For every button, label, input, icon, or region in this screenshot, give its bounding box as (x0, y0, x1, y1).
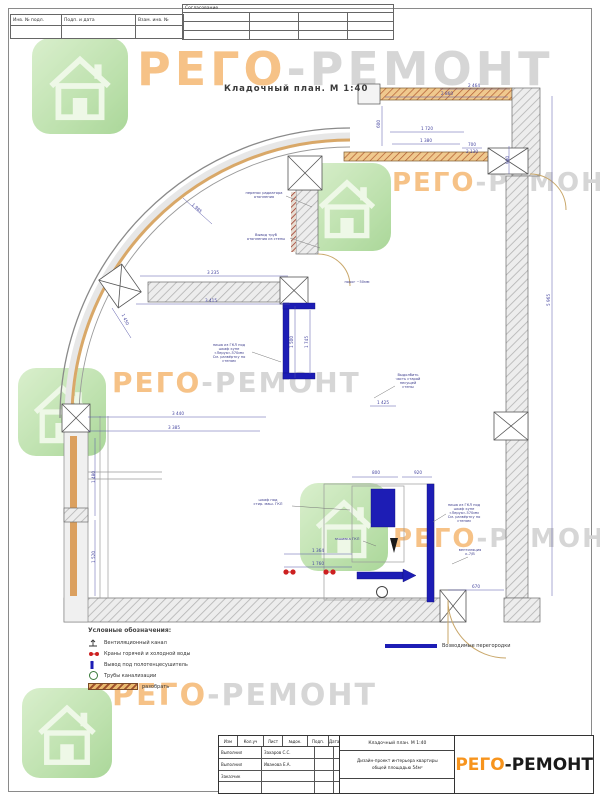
legend-title: Условные обозначения: (88, 627, 190, 634)
role-cell: Заказчик (219, 771, 262, 782)
partition-arrow (403, 569, 416, 582)
svg-text:1 720: 1 720 (421, 126, 433, 131)
sanitary-symbols (284, 538, 398, 598)
svg-text:3 440: 3 440 (172, 411, 184, 416)
sign-cell (315, 782, 334, 793)
approval-cell (348, 13, 393, 21)
legend-item-label: Возводимые перегородки (442, 643, 511, 649)
demolish-hatch-icon (88, 683, 138, 690)
svg-text:Выдолбитьчасть старойнесущейст: Выдолбитьчасть старойнесущейстены (396, 373, 421, 389)
svg-text:шкаф подстир. маш. ГКЛ: шкаф подстир. маш. ГКЛ (254, 498, 283, 506)
title-block-signatures: Изм Кол.уч Лист №док. Подп. Дата Выполни… (219, 736, 340, 793)
stamp-field-label: Подп. и дата (62, 15, 135, 26)
approval-cell (299, 31, 348, 39)
svg-text:2 130: 2 130 (466, 149, 478, 154)
column (62, 404, 90, 432)
svg-text:1 480: 1 480 (91, 471, 96, 483)
column (280, 277, 308, 304)
svg-text:920: 920 (414, 470, 422, 475)
header-cell: Подп. (308, 736, 329, 746)
svg-text:2 464: 2 464 (468, 83, 480, 88)
approval-cell (183, 22, 250, 30)
sign-cell (315, 747, 334, 758)
title-block-header-row: Изм Кол.уч Лист №док. Подп. Дата (219, 736, 339, 747)
svg-text:3 385: 3 385 (168, 425, 180, 430)
header-cell: Изм (219, 736, 238, 746)
door-arc (530, 174, 566, 210)
new-partition-icon (385, 644, 437, 648)
stamp-field-value (136, 26, 183, 38)
legend-item-label: Вентиляционный канал (104, 640, 167, 646)
name-cell (262, 771, 315, 782)
header-cell: №док. (283, 736, 308, 746)
approval-cell (348, 22, 393, 30)
approval-row (183, 31, 393, 39)
svg-text:1 985: 1 985 (191, 202, 204, 214)
approval-cell (250, 13, 299, 21)
role-cell: Выполнил (219, 747, 262, 758)
legend-item: разобрать (88, 681, 190, 692)
svg-text:800: 800 (372, 470, 380, 475)
annotation-leaders (252, 196, 468, 564)
legend: Условные обозначения: Вентиляционный кан… (88, 627, 190, 692)
approval-cell (183, 13, 250, 21)
header-cell: Кол.уч (238, 736, 264, 746)
legend-item: Трубы канализации (88, 670, 190, 681)
role-cell (219, 782, 262, 793)
svg-text:перенос радиатораотопления: перенос радиатораотопления (245, 191, 282, 199)
approval-table: Согласование (182, 4, 394, 40)
approval-header: Согласование (183, 5, 393, 13)
side-stamp-fields: Инв. № подл. Подп. и дата Взам. инв. № (10, 14, 184, 39)
svg-text:670: 670 (472, 584, 480, 589)
header-cell: Дата (329, 736, 339, 746)
stamp-field-value (11, 26, 61, 38)
stamp-field-date: Подп. и дата (61, 14, 135, 39)
svg-text:1 380: 1 380 (420, 138, 432, 143)
water-taps-icon (88, 650, 104, 658)
date-cell (334, 759, 339, 770)
role-cell: Выполнил (219, 759, 262, 770)
approval-cell (348, 31, 393, 39)
name-cell: Захаров С.С. (262, 747, 315, 758)
title-block: Изм Кол.уч Лист №док. Подп. Дата Выполни… (218, 735, 594, 794)
stamp-field-vzam: Взам. инв. № (135, 14, 184, 39)
project-description: Дизайн-проект интерьера квартиры общей п… (340, 751, 454, 779)
date-cell (334, 771, 339, 782)
annotation-texts: перенос радиатораотопленияВывод труботоп… (213, 191, 482, 556)
svg-text:1 425: 1 425 (377, 400, 389, 405)
approval-cell (250, 22, 299, 30)
svg-text:2 860: 2 860 (441, 91, 453, 96)
signature-row: Выполнил Захаров С.С. (219, 747, 339, 759)
svg-text:600: 600 (376, 120, 381, 128)
legend-item: Краны горячей и холодной воды (88, 648, 190, 659)
gkl-shaft (371, 489, 395, 527)
svg-text:3 235: 3 235 (207, 270, 219, 275)
new-partition (357, 572, 403, 579)
towel-dryer-outlet-icon (88, 660, 104, 670)
drawing-sheet: Инв. № подл. Подп. и дата Взам. инв. № С… (0, 0, 600, 800)
svg-text:1 745: 1 745 (304, 336, 309, 348)
approval-row (183, 22, 393, 31)
plan-title: Кладочный план. М 1:40 (224, 84, 368, 94)
date-cell (334, 747, 339, 758)
column (494, 412, 528, 440)
sewer-pipe-icon (88, 670, 104, 681)
svg-text:3 415: 3 415 (205, 298, 217, 303)
legend-item-label: Трубы канализации (104, 673, 156, 679)
column (288, 156, 322, 190)
stamp-field-label: Инв. № подл. (11, 15, 61, 26)
name-cell (262, 782, 315, 793)
svg-text:вентиляцияк-7/В: вентиляцияк-7/В (459, 548, 482, 556)
svg-text:700: 700 (468, 142, 476, 147)
vent-duct-icon (88, 638, 104, 647)
svg-text:ниша из ГКЛ подшкаф купе«Леруа: ниша из ГКЛ подшкаф купе«Леруа»-570ммСм.… (448, 503, 481, 523)
legend-item-new-partitions: Возводимые перегородки (385, 643, 511, 649)
title-block-description: Кладочный план. М 1:40 Дизайн-проект инт… (340, 736, 455, 793)
svg-text:1 364: 1 364 (312, 548, 324, 553)
sign-cell (315, 771, 334, 782)
approval-cell (250, 31, 299, 39)
stamp-field-inv: Инв. № подл. (10, 14, 61, 39)
signature-row: Заказчик (219, 771, 339, 783)
legend-item: Вентиляционный канал (88, 637, 190, 648)
approval-cell (183, 31, 250, 39)
name-cell: Иванова Е.А. (262, 759, 315, 770)
doc-title: Кладочный план. М 1:40 (340, 736, 454, 751)
approval-row (183, 13, 393, 22)
sewer-pipe-icon (377, 587, 388, 598)
svg-text:1 500: 1 500 (289, 336, 294, 348)
column (440, 590, 466, 622)
brand-part1: РЕГО (455, 755, 504, 775)
svg-text:порог ~50мм: порог ~50мм (344, 280, 369, 284)
svg-text:1 760: 1 760 (312, 561, 324, 566)
sign-cell (315, 759, 334, 770)
approval-cell (299, 13, 348, 21)
water-taps-icon (324, 570, 335, 574)
svg-text:1 520: 1 520 (91, 551, 96, 563)
towel-dryer-icon (390, 538, 398, 553)
svg-text:980: 980 (505, 156, 510, 164)
brand-part2: -РЕМОНТ (505, 755, 593, 775)
svg-text:зашивка ГКЛ: зашивка ГКЛ (335, 537, 360, 541)
door-swings (318, 174, 566, 658)
legend-item-label: Краны горячей и холодной воды (104, 651, 190, 657)
signature-row: Выполнил Иванова Е.А. (219, 759, 339, 771)
approval-cell (299, 22, 348, 30)
stamp-field-label: Взам. инв. № (136, 15, 183, 26)
new-partition (427, 484, 434, 602)
stamp-field-value (62, 26, 135, 38)
project-line2: общей площадью 54м² (372, 765, 423, 771)
water-taps-icon (284, 570, 295, 574)
legend-item-label: Вывод под полотенцесушитель (104, 662, 188, 668)
legend-item-label: разобрать (142, 684, 169, 690)
svg-text:5 965: 5 965 (546, 294, 551, 306)
legend-item: Вывод под полотенцесушитель (88, 659, 190, 670)
header-cell: Лист (264, 736, 283, 746)
empty-cell (340, 779, 454, 793)
svg-text:ниша из ГКЛ подшкаф купе«Леруа: ниша из ГКЛ подшкаф купе«Леруа»-570ммСм.… (213, 343, 246, 363)
company-logo: РЕГО-РЕМОНТ (455, 736, 593, 793)
svg-text:Вывод труботопления из стены: Вывод труботопления из стены (247, 233, 285, 241)
date-cell (334, 782, 339, 793)
signature-row (219, 782, 339, 793)
